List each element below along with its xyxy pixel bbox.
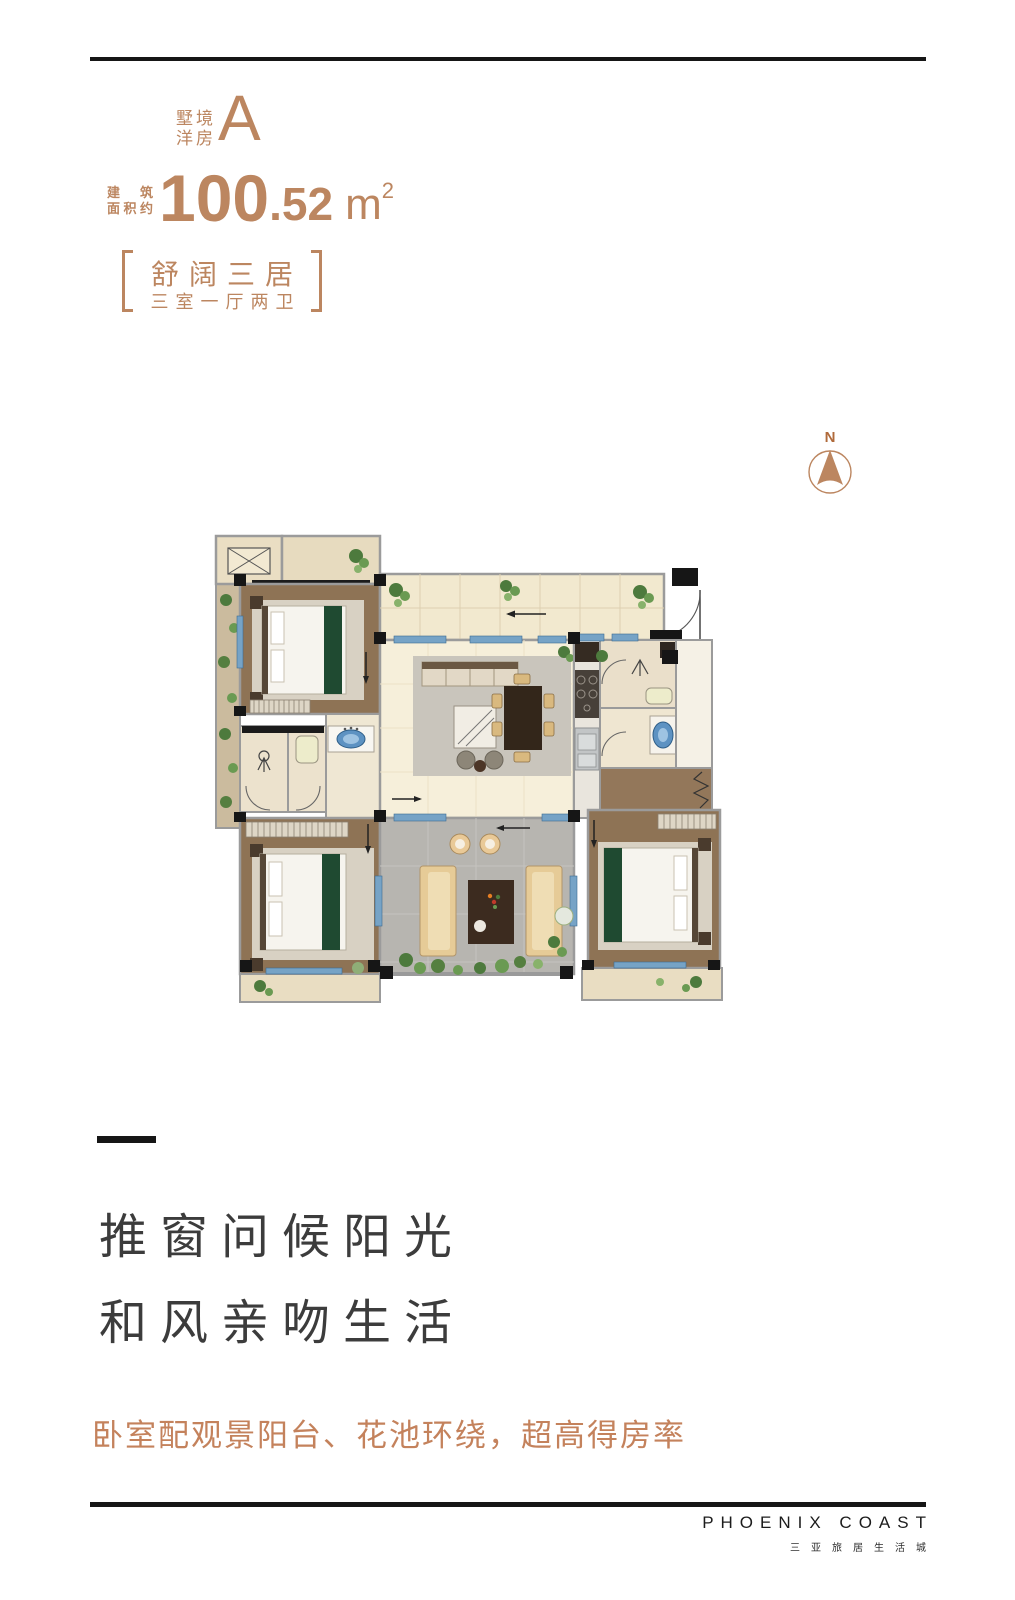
living-dining-room — [380, 640, 574, 818]
utility-room — [216, 536, 282, 584]
tagline-sub: 三室一厅两卫 — [122, 288, 322, 314]
tagline: 舒阔三居 — [122, 253, 322, 293]
bathroom-right-bottom — [600, 708, 676, 768]
area-row: 建 筑 面积约 100 .52 m 2 — [107, 172, 394, 224]
unit-type-label: 墅境 洋房 — [176, 109, 216, 149]
kitchen — [574, 640, 600, 818]
tagline-box: 舒阔三居 三室一厅两卫 — [122, 250, 322, 312]
floor-plan — [208, 516, 748, 1006]
section-dash — [97, 1136, 156, 1143]
area-prefix-line1: 建 筑 — [107, 185, 153, 201]
area-prefix: 建 筑 面积约 — [107, 185, 153, 217]
compass: N — [790, 426, 870, 500]
area-unit: m — [345, 186, 382, 224]
terrace-top — [380, 574, 664, 640]
unit-type-line2: 洋房 — [176, 129, 216, 149]
headline-line2: 和风亲吻生活 — [99, 1298, 465, 1350]
brand-name-cn: 三亚旅居生活城 — [790, 1539, 937, 1554]
balcony-bedroom-second — [240, 974, 380, 1002]
bottom-rule — [90, 1502, 926, 1507]
unit-letter: A — [218, 86, 261, 150]
courtyard — [380, 818, 574, 974]
top-rule — [90, 57, 926, 61]
bedroom-second — [240, 818, 380, 974]
compass-north-label: N — [825, 429, 836, 446]
footer-brand: PHOENIX COAST 三亚旅居生活城 — [702, 1513, 926, 1554]
headline-line1: 推窗问候阳光 — [99, 1212, 465, 1264]
planter-strip-left — [216, 576, 240, 828]
unit-type-line1: 墅境 — [176, 109, 216, 129]
floor-plan-drawing — [208, 516, 748, 1006]
balcony-bedroom-third — [582, 968, 722, 1000]
compass-needle-icon — [817, 450, 843, 485]
bedroom-master — [240, 584, 380, 714]
hallway-left — [326, 714, 380, 818]
area-unit-exponent: 2 — [382, 180, 394, 202]
area-prefix-line2: 面积约 — [107, 201, 153, 217]
area-decimal: .52 — [269, 184, 333, 224]
bathroom-left — [240, 726, 326, 812]
area-integer: 100 — [159, 172, 269, 224]
highlight-text: 卧室配观景阳台、花池环绕，超高得房率 — [92, 1410, 686, 1455]
brand-name-en: PHOENIX COAST — [702, 1513, 933, 1533]
bedroom-third — [588, 810, 720, 968]
compass-icon: N — [790, 426, 870, 500]
poster-page: 墅境 洋房 A 建 筑 面积约 100 .52 m 2 舒阔三居 三室一厅两卫 … — [0, 0, 1015, 1600]
